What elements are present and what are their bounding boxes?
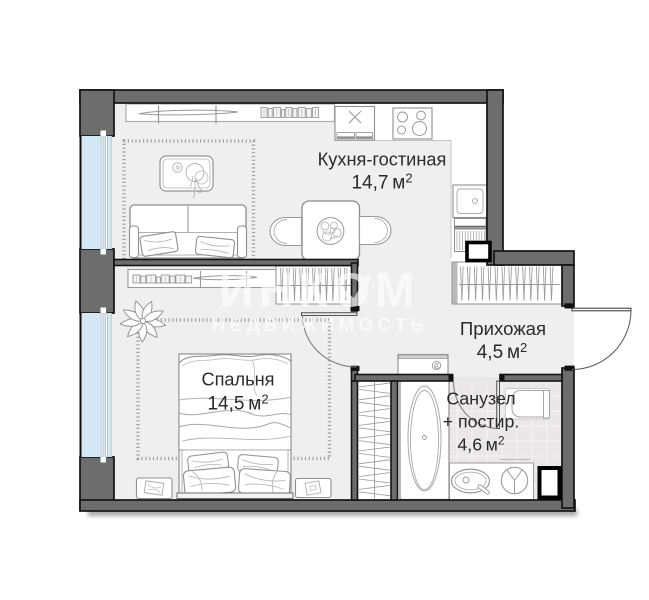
svg-text:Санузел: Санузел	[446, 389, 515, 409]
svg-text:4,6 м2: 4,6 м2	[457, 434, 505, 455]
svg-text:Спальня: Спальня	[201, 370, 274, 390]
svg-text:Кухня-гостиная: Кухня-гостиная	[318, 150, 447, 170]
svg-text:НЕДВИЖИМОСТЬ: НЕДВИЖИМОСТЬ	[212, 314, 428, 335]
svg-text:Прихожая: Прихожая	[460, 318, 546, 339]
svg-text:14,5 м2: 14,5 м2	[207, 392, 268, 415]
svg-text:ИНКОМ: ИНКОМ	[219, 264, 420, 318]
svg-text:4,5 м2: 4,5 м2	[477, 340, 528, 363]
svg-text:+ постир.: + постир.	[443, 412, 520, 432]
svg-text:14,7 м2: 14,7 м2	[351, 171, 412, 194]
